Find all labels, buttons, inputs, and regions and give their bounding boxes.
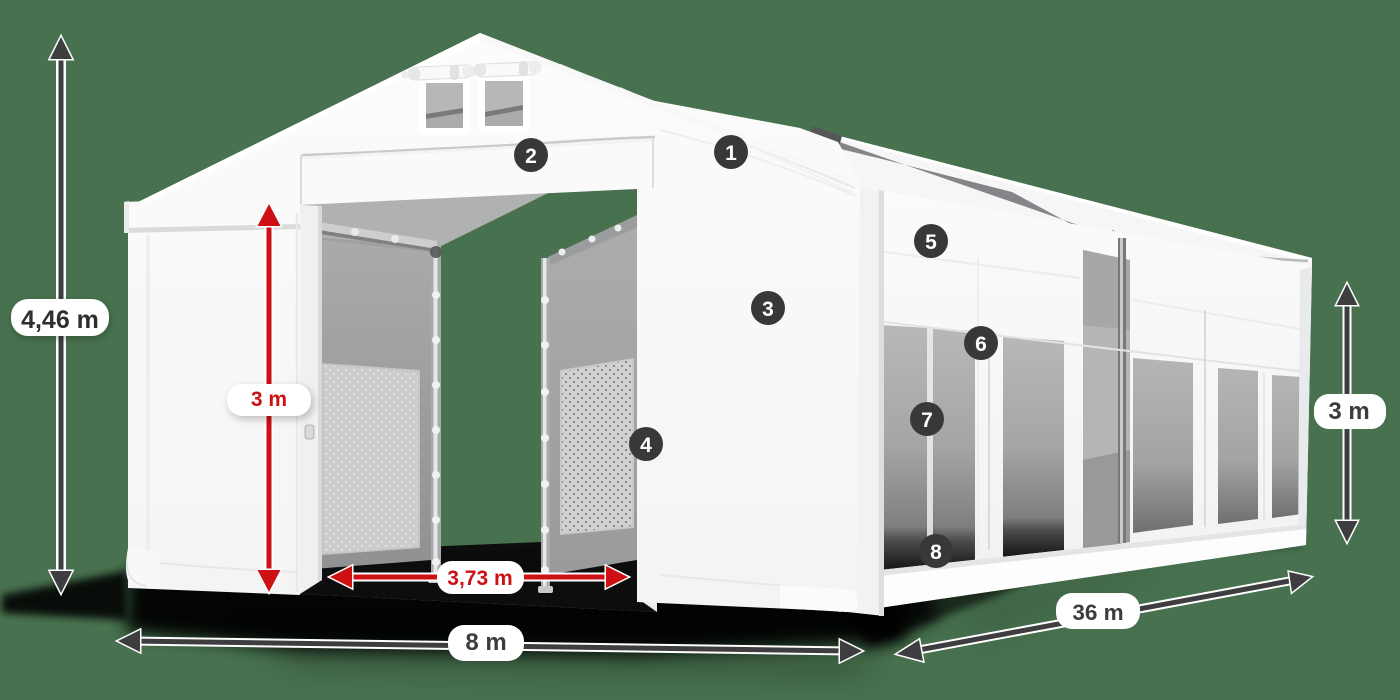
svg-text:3 m: 3 m (251, 388, 287, 411)
svg-text:3,73 m: 3,73 m (447, 567, 512, 590)
svg-text:4: 4 (640, 434, 652, 457)
svg-text:8: 8 (930, 541, 942, 564)
svg-text:1: 1 (725, 142, 737, 165)
svg-text:8 m: 8 m (465, 629, 506, 656)
svg-text:36 m: 36 m (1072, 600, 1123, 625)
svg-text:6: 6 (975, 333, 987, 356)
svg-text:4,46 m: 4,46 m (21, 306, 99, 334)
svg-text:3: 3 (762, 298, 774, 321)
svg-text:2: 2 (525, 145, 537, 168)
svg-text:5: 5 (925, 231, 937, 254)
svg-text:3 m: 3 m (1328, 398, 1369, 425)
svg-text:7: 7 (921, 409, 933, 432)
